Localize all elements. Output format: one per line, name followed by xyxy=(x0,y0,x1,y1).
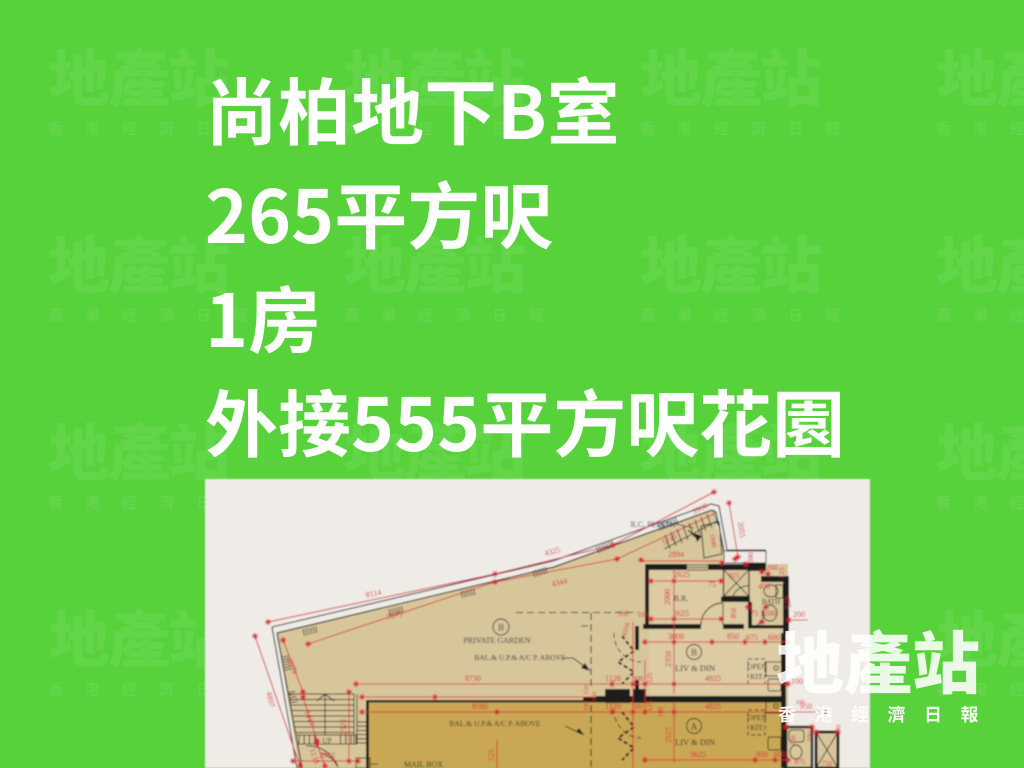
svg-text:2000: 2000 xyxy=(663,589,672,605)
svg-text:2525: 2525 xyxy=(664,727,673,743)
svg-text:675: 675 xyxy=(746,633,758,642)
svg-text:B: B xyxy=(498,623,504,633)
svg-text:160: 160 xyxy=(591,692,598,702)
svg-text:B: B xyxy=(691,648,697,658)
svg-text:125: 125 xyxy=(646,672,654,683)
svg-text:125: 125 xyxy=(646,700,654,711)
svg-text:2894: 2894 xyxy=(668,550,684,559)
svg-text:75: 75 xyxy=(750,609,758,618)
svg-text:B.R.: B.R. xyxy=(674,594,689,603)
svg-text:875: 875 xyxy=(795,758,806,766)
svg-text:BAL.& U.P.& A/C P. ABOVE: BAL.& U.P.& A/C P. ABOVE xyxy=(474,653,566,662)
svg-text:8730: 8730 xyxy=(465,674,481,683)
svg-text:2625: 2625 xyxy=(674,570,690,579)
svg-text:2350: 2350 xyxy=(664,651,673,667)
svg-text:UP: UP xyxy=(322,736,332,745)
svg-text:400: 400 xyxy=(758,582,770,591)
svg-text:A: A xyxy=(691,722,698,732)
svg-text:BAL.& U.P.& A/C P. ABOVE: BAL.& U.P.& A/C P. ABOVE xyxy=(449,719,541,728)
svg-text:900: 900 xyxy=(756,750,768,759)
svg-text:2625: 2625 xyxy=(673,609,689,618)
svg-text:100: 100 xyxy=(657,706,665,717)
svg-text:OPEN: OPEN xyxy=(747,713,767,722)
svg-text:OPEN: OPEN xyxy=(747,662,767,671)
svg-text:200: 200 xyxy=(746,552,755,564)
svg-text:1200: 1200 xyxy=(760,609,776,618)
svg-text:4825: 4825 xyxy=(705,702,721,711)
svg-text:1120: 1120 xyxy=(605,702,621,711)
svg-text:100: 100 xyxy=(583,701,590,711)
svg-text:4825: 4825 xyxy=(705,674,721,683)
svg-text:8580: 8580 xyxy=(472,702,488,711)
svg-text:850: 850 xyxy=(730,607,738,618)
svg-text:PRIVATE GARDEN: PRIVATE GARDEN xyxy=(463,636,530,645)
svg-text:300: 300 xyxy=(633,703,644,711)
svg-text:3625: 3625 xyxy=(690,750,706,759)
svg-text:KIT.: KIT. xyxy=(750,672,764,681)
svg-text:200: 200 xyxy=(793,610,805,619)
svg-text:925: 925 xyxy=(729,572,740,580)
svg-text:850: 850 xyxy=(727,632,739,641)
svg-text:KIT.: KIT. xyxy=(750,723,764,732)
svg-text:1128: 1128 xyxy=(605,674,621,683)
svg-text:100: 100 xyxy=(638,611,649,619)
svg-text:2062: 2062 xyxy=(319,751,335,760)
svg-text:MAIL BOX: MAIL BOX xyxy=(404,760,443,768)
svg-text:600: 600 xyxy=(768,633,780,642)
svg-text:100: 100 xyxy=(796,700,805,706)
svg-text:75: 75 xyxy=(708,580,716,589)
svg-text:525: 525 xyxy=(487,749,496,761)
svg-text:750: 750 xyxy=(822,760,833,768)
svg-text:300: 300 xyxy=(633,675,644,683)
svg-text:BATH: BATH xyxy=(762,598,780,606)
svg-text:LIV & DIN: LIV & DIN xyxy=(675,663,715,673)
svg-text:2525: 2525 xyxy=(339,719,348,735)
svg-text:150: 150 xyxy=(583,685,590,695)
svg-text:LIV & DIN: LIV & DIN xyxy=(675,737,715,747)
svg-text:600: 600 xyxy=(774,750,786,759)
svg-text:125: 125 xyxy=(777,567,786,579)
svg-text:200: 200 xyxy=(618,610,629,618)
